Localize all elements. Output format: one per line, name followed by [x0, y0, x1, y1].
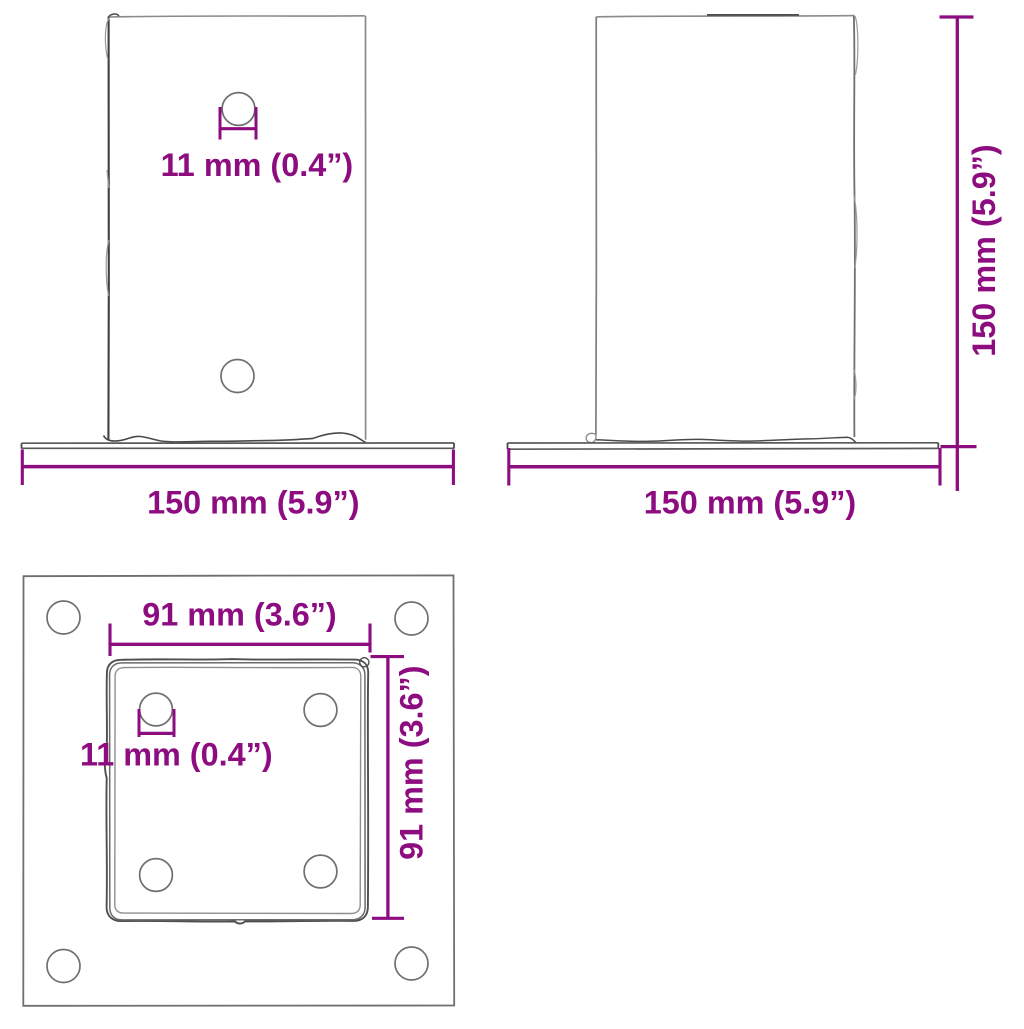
svg-text:150 mm (5.9”): 150 mm (5.9”) — [966, 144, 1002, 356]
svg-text:11 mm (0.4”): 11 mm (0.4”) — [80, 737, 273, 773]
svg-text:150 mm (5.9”): 150 mm (5.9”) — [147, 484, 359, 520]
svg-text:91 mm (3.6”): 91 mm (3.6”) — [142, 597, 336, 633]
svg-text:91 mm (3.6”): 91 mm (3.6”) — [394, 665, 430, 859]
svg-text:150 mm (5.9”): 150 mm (5.9”) — [644, 485, 856, 521]
svg-text:11 mm (0.4”): 11 mm (0.4”) — [161, 147, 354, 183]
